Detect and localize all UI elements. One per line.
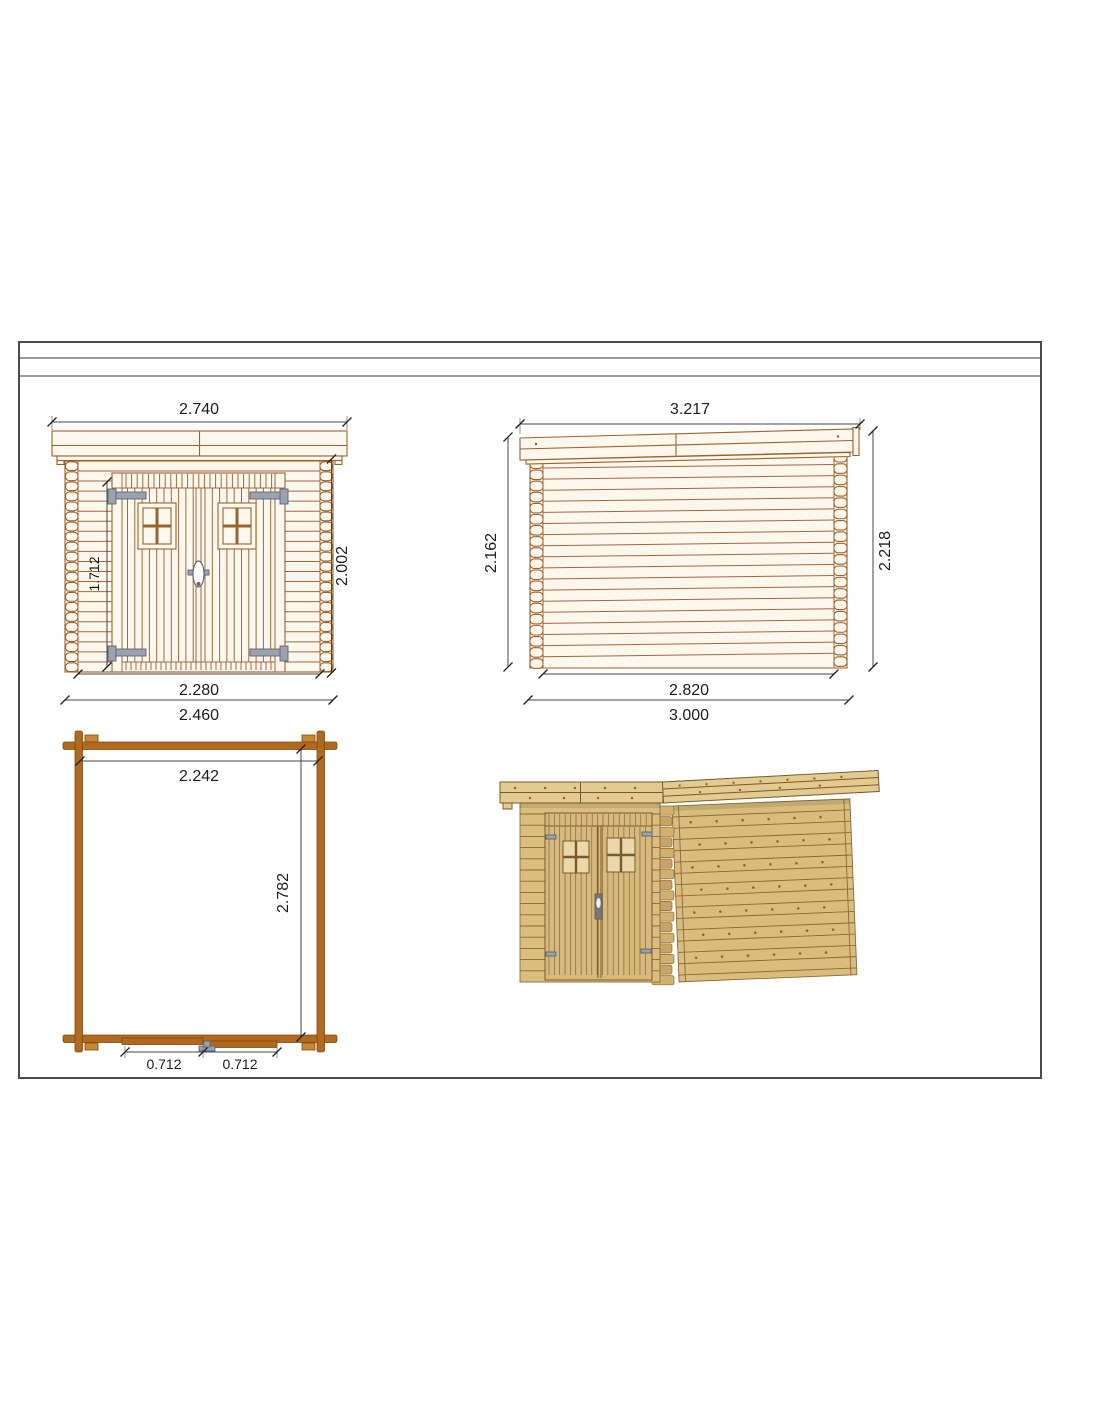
door-window-right — [218, 503, 256, 549]
side-elevation-view: 3.217 2.162 2.218 2.820 3.000 — [480, 398, 910, 728]
render-3d-view — [488, 765, 888, 1015]
dim-side-inner-length: 2.820 — [539, 670, 839, 700]
render-window-right — [607, 838, 635, 872]
front-double-door — [108, 473, 288, 672]
side-wall — [530, 452, 847, 668]
render-window-left — [563, 841, 589, 873]
dim-plan-inner-width: 2.242 — [76, 757, 323, 786]
svg-text:2.460: 2.460 — [179, 707, 219, 724]
svg-text:1.712: 1.712 — [86, 556, 102, 591]
svg-text:2.002: 2.002 — [334, 546, 351, 586]
svg-text:2.740: 2.740 — [179, 401, 219, 418]
svg-text:2.242: 2.242 — [179, 768, 219, 785]
svg-text:2.820: 2.820 — [669, 682, 709, 699]
svg-text:3.000: 3.000 — [669, 707, 709, 724]
dim-front-outer-width: 2.460 — [61, 696, 338, 725]
side-left-log-ends — [530, 459, 543, 668]
dim-side-outer-length: 3.000 — [524, 696, 854, 725]
front-elevation-view: 2.740 1.712 2.002 2.280 2.460 — [20, 398, 365, 728]
svg-text:2.280: 2.280 — [179, 682, 219, 699]
dim-front-inner-width: 2.280 — [74, 670, 325, 700]
dim-front-roof-width: 2.740 — [48, 401, 352, 430]
dim-side-right-height: 2.218 — [869, 427, 895, 672]
door-window-left — [138, 503, 176, 549]
front-left-log-ends — [66, 462, 79, 672]
title-block-rule-top — [20, 357, 1040, 359]
floor-plan-view: 2.242 2.782 0.712 0.712 — [50, 725, 370, 1085]
svg-text:0.712: 0.712 — [222, 1056, 257, 1072]
render-door — [545, 813, 652, 980]
front-right-log-ends — [320, 462, 333, 672]
svg-text:2.162: 2.162 — [483, 533, 500, 573]
render-side-roof — [662, 771, 879, 803]
svg-text:3.217: 3.217 — [670, 401, 710, 418]
render-door-handle — [595, 894, 602, 919]
dim-plan-inner-depth: 2.782 — [275, 745, 306, 1042]
front-roof — [52, 431, 347, 465]
svg-text:2.782: 2.782 — [275, 873, 292, 913]
render-side-wall — [672, 799, 857, 982]
dim-side-roof-length: 3.217 — [516, 401, 865, 434]
title-block-rule-bottom — [20, 375, 1040, 377]
drawing-sheet: 2.740 1.712 2.002 2.280 2.460 — [0, 0, 1100, 1422]
side-right-log-ends — [834, 453, 847, 667]
svg-text:2.218: 2.218 — [877, 531, 894, 571]
dim-side-left-height: 2.162 — [483, 433, 513, 672]
svg-text:0.712: 0.712 — [146, 1056, 181, 1072]
